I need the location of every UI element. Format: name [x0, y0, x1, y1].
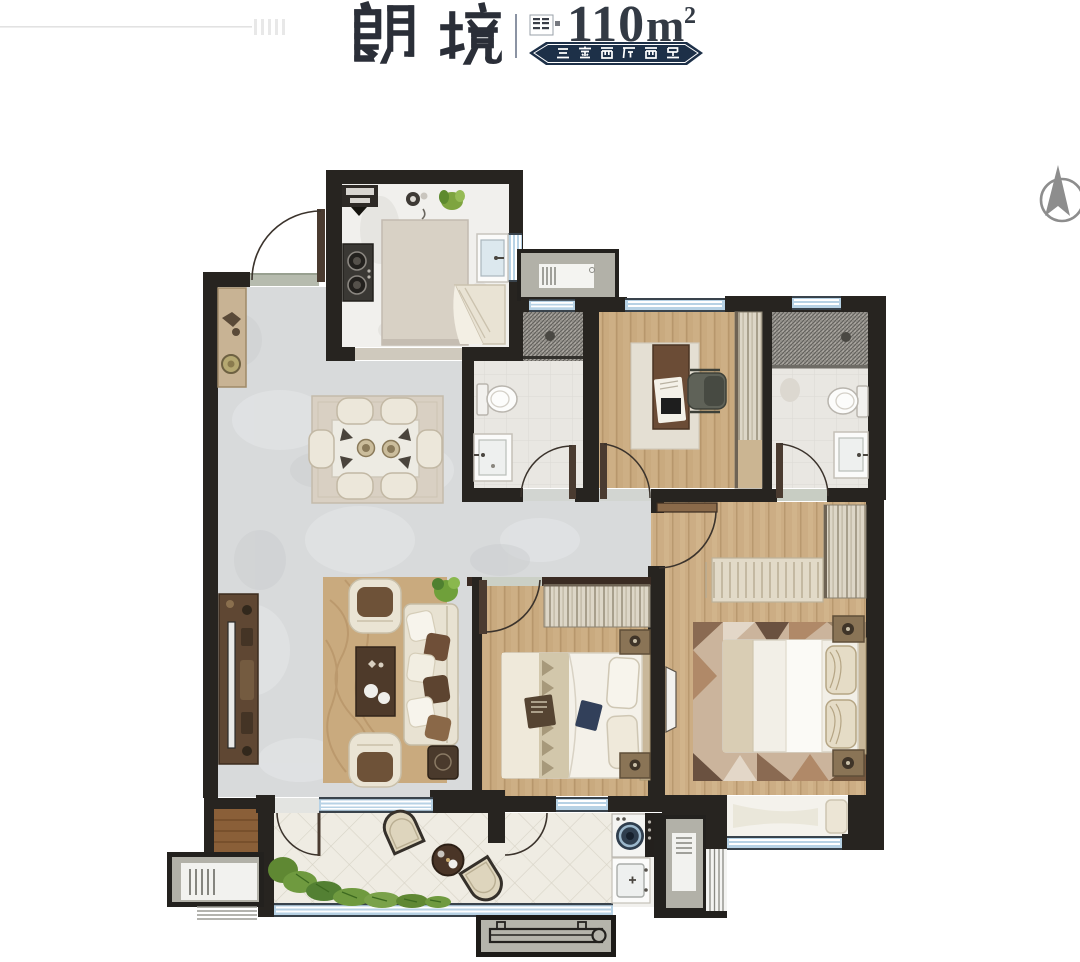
svg-text:2: 2: [684, 3, 696, 29]
